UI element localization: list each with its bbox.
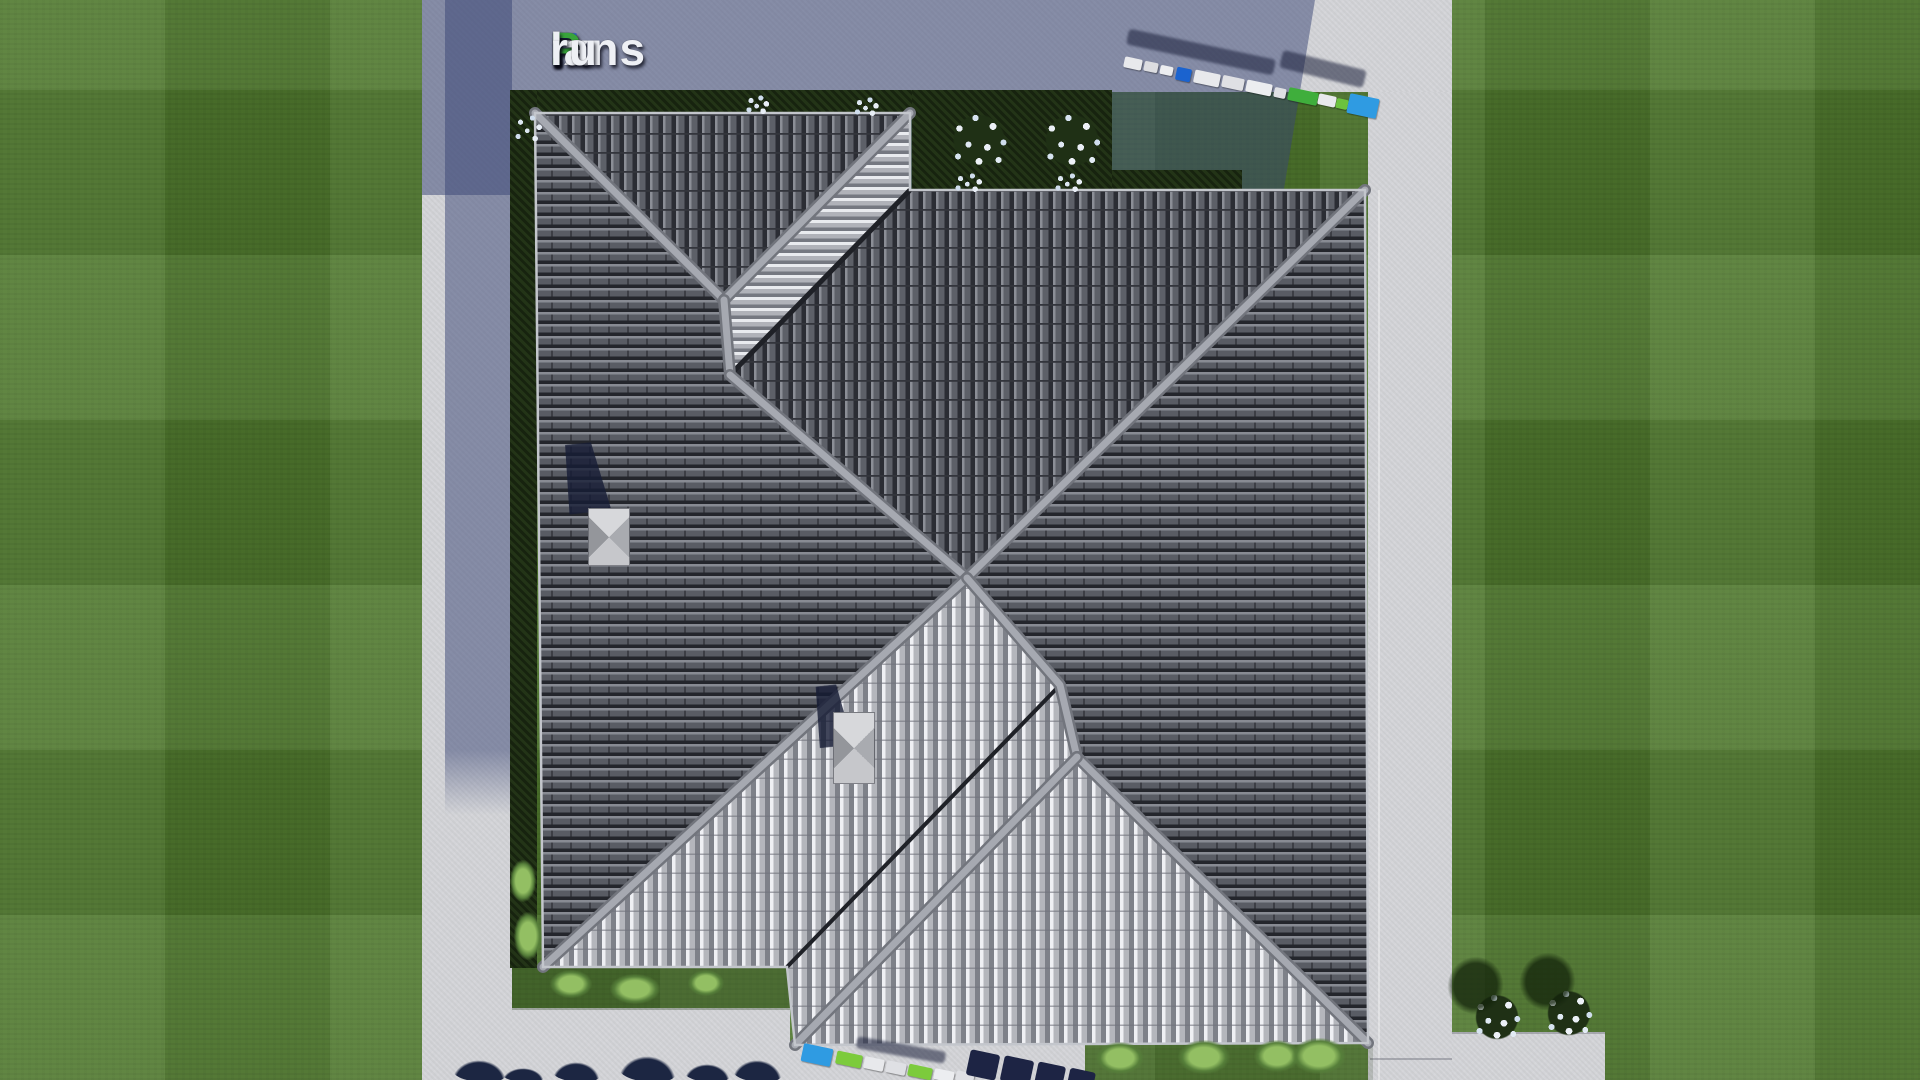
shrub xyxy=(1178,1040,1230,1074)
flower-bush xyxy=(1540,982,1598,1042)
watermark-part: ru xyxy=(550,26,598,72)
shrub xyxy=(688,970,724,996)
flower-bush xyxy=(944,104,1014,174)
tree-silhouette xyxy=(684,1064,730,1080)
tree-silhouette xyxy=(552,1062,600,1080)
tree-silhouette xyxy=(452,1060,506,1080)
marker-block xyxy=(1273,87,1287,99)
shrub xyxy=(510,860,536,902)
flower-speckles xyxy=(744,94,772,116)
flower-bush xyxy=(1036,104,1108,174)
shrub xyxy=(1292,1038,1346,1074)
shrub xyxy=(514,912,542,960)
flower-speckles xyxy=(852,96,882,118)
roof-vent xyxy=(588,508,630,566)
marker-block xyxy=(1175,67,1192,83)
flower-speckles xyxy=(1052,172,1086,194)
roof-vent xyxy=(833,712,875,784)
shrub xyxy=(610,974,660,1004)
marker-letter-shadow xyxy=(966,1049,1001,1080)
tree-silhouette xyxy=(618,1056,676,1080)
shrub xyxy=(550,970,592,998)
flower-speckles xyxy=(512,112,546,146)
shrub xyxy=(1096,1042,1144,1074)
aerial-roof-render: FixPlans.ru xyxy=(0,0,1920,1080)
tree-silhouette xyxy=(502,1068,544,1080)
tree-silhouette xyxy=(732,1060,782,1080)
flower-speckles xyxy=(952,172,986,194)
